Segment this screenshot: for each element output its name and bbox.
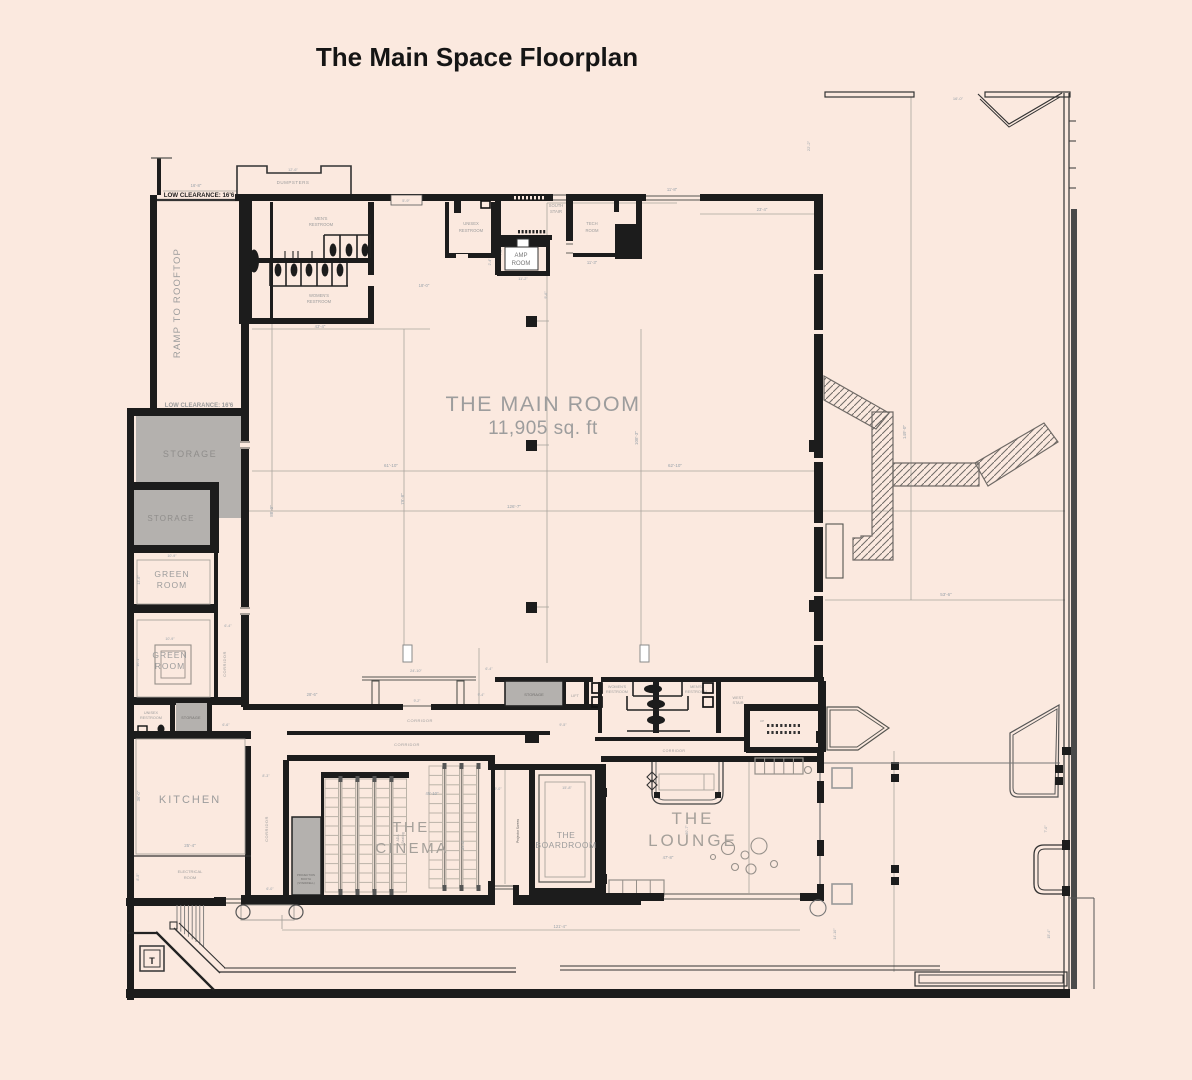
svg-text:LIFT: LIFT: [571, 694, 579, 698]
svg-text:AMP: AMP: [514, 253, 527, 259]
svg-text:RAMP TO ROOFTOP: RAMP TO ROOFTOP: [172, 248, 183, 358]
svg-text:5'-9": 5'-9": [402, 199, 410, 203]
svg-text:RESTROOM: RESTROOM: [606, 690, 628, 694]
svg-text:9'-0": 9'-0": [494, 787, 502, 791]
svg-text:79'-8": 79'-8": [400, 493, 405, 505]
svg-text:18'-0": 18'-0": [419, 283, 430, 288]
svg-text:STAIR: STAIR: [733, 701, 744, 705]
svg-text:ROOM: ROOM: [155, 661, 185, 671]
svg-text:(STAIRWELL): (STAIRWELL): [297, 881, 315, 885]
svg-text:53'-6": 53'-6": [940, 592, 952, 597]
svg-text:11'-8": 11'-8": [667, 187, 678, 192]
svg-text:CORRIDOR: CORRIDOR: [663, 749, 686, 753]
svg-text:61'-10": 61'-10": [384, 463, 398, 468]
svg-text:7'-0": 7'-0": [1044, 825, 1048, 833]
svg-text:WEST: WEST: [733, 696, 745, 700]
svg-text:GREEN: GREEN: [154, 569, 189, 579]
svg-text:9'-2": 9'-2": [414, 699, 422, 703]
svg-text:24'-10": 24'-10": [410, 669, 422, 673]
svg-text:126'-7": 126'-7": [507, 504, 521, 509]
svg-text:Seating: Seating: [401, 832, 405, 844]
svg-text:ROOM: ROOM: [184, 875, 196, 880]
svg-text:13'-6": 13'-6": [137, 575, 141, 585]
svg-text:6'-4": 6'-4": [224, 624, 232, 628]
svg-text:15'-8": 15'-8": [562, 786, 572, 790]
svg-text:16'-8": 16'-8": [191, 183, 202, 188]
svg-text:36'-0": 36'-0": [136, 790, 141, 801]
svg-text:16'-1": 16'-1": [136, 657, 140, 667]
svg-text:STORAGE: STORAGE: [524, 692, 544, 697]
svg-text:6'-6": 6'-6": [222, 723, 230, 727]
svg-text:TECH: TECH: [586, 221, 597, 226]
svg-text:RESTROOM: RESTROOM: [307, 299, 332, 304]
svg-text:45'-10": 45'-10": [426, 791, 440, 796]
svg-text:9'-5": 9'-5": [559, 723, 567, 727]
svg-text:22'-2": 22'-2": [806, 140, 811, 151]
svg-text:CORRIDOR: CORRIDOR: [394, 742, 420, 747]
svg-text:11'-2": 11'-2": [518, 277, 528, 281]
svg-text:28'-6": 28'-6": [307, 692, 318, 697]
svg-text:Projector Screen: Projector Screen: [516, 819, 520, 843]
svg-text:CINEMA: CINEMA: [375, 840, 448, 857]
svg-text:LOW CLEARANCE: 16'6: LOW CLEARANCE: 16'6: [164, 192, 235, 199]
svg-text:BOARDROOM: BOARDROOM: [535, 840, 596, 850]
svg-text:T: T: [149, 956, 155, 966]
svg-text:2'-4": 2'-4": [488, 258, 492, 266]
svg-text:THE: THE: [392, 819, 430, 836]
svg-text:149'-0": 149'-0": [902, 425, 907, 439]
svg-text:ROOM: ROOM: [585, 228, 599, 233]
svg-text:RESTROOM: RESTROOM: [459, 228, 484, 233]
svg-text:8'-3": 8'-3": [262, 774, 270, 778]
svg-text:25'-4": 25'-4": [184, 843, 196, 848]
svg-text:THE: THE: [672, 809, 715, 828]
svg-text:STORAGE: STORAGE: [163, 449, 217, 459]
svg-text:16'-0": 16'-0": [953, 96, 964, 101]
svg-text:6'-4": 6'-4": [485, 667, 493, 671]
svg-text:24'-0": 24'-0": [461, 840, 465, 850]
svg-text:9'-4": 9'-4": [478, 693, 486, 697]
svg-text:10'-9": 10'-9": [167, 554, 177, 558]
svg-text:12'-6": 12'-6": [288, 168, 298, 172]
svg-text:62'-10": 62'-10": [668, 463, 682, 468]
svg-text:8'-5": 8'-5": [136, 873, 140, 881]
svg-text:108'-3": 108'-3": [634, 431, 639, 445]
svg-text:121'-4": 121'-4": [554, 924, 568, 929]
svg-text:9'-6": 9'-6": [544, 291, 548, 299]
svg-text:15'-4": 15'-4": [1047, 929, 1051, 939]
svg-text:RESTROOM: RESTROOM: [309, 222, 334, 227]
svg-text:MEN'S: MEN'S: [690, 685, 702, 689]
svg-text:ADA: ADA: [396, 834, 400, 842]
svg-text:UNISEX: UNISEX: [463, 221, 479, 226]
svg-text:CORRIDOR: CORRIDOR: [407, 718, 433, 723]
svg-text:CORRIDOR: CORRIDOR: [222, 651, 227, 677]
svg-text:47'-8": 47'-8": [663, 855, 674, 860]
svg-text:WOMEN'S: WOMEN'S: [608, 685, 627, 689]
svg-text:ELECTRICAL: ELECTRICAL: [178, 869, 203, 874]
svg-text:11'-3": 11'-3": [587, 260, 598, 265]
svg-text:6'-0": 6'-0": [266, 887, 274, 891]
svg-text:GREEN: GREEN: [152, 650, 187, 660]
svg-text:WOMEN'S: WOMEN'S: [309, 293, 329, 298]
svg-text:KITCHEN: KITCHEN: [159, 794, 221, 806]
svg-text:STORAGE: STORAGE: [147, 514, 194, 523]
svg-text:ROOM: ROOM: [157, 580, 187, 590]
svg-text:CORRIDOR: CORRIDOR: [264, 816, 269, 842]
svg-text:SOUTH: SOUTH: [549, 203, 564, 208]
svg-text:THE MAIN ROOM: THE MAIN ROOM: [445, 392, 640, 416]
svg-text:THE: THE: [557, 830, 576, 840]
svg-text:10'-9": 10'-9": [165, 637, 175, 641]
svg-text:43'-4": 43'-4": [315, 324, 326, 329]
svg-text:UP: UP: [760, 719, 764, 723]
svg-text:ROOM: ROOM: [512, 261, 531, 267]
svg-text:STORAGE: STORAGE: [181, 716, 201, 720]
svg-text:The Main Space Floorplan: The Main Space Floorplan: [316, 42, 638, 72]
svg-text:14'-10": 14'-10": [833, 928, 837, 940]
svg-text:88'-0": 88'-0": [269, 505, 274, 517]
svg-text:UNISEX: UNISEX: [144, 711, 159, 715]
svg-text:23'-4": 23'-4": [757, 207, 768, 212]
svg-text:DUMPSTERS: DUMPSTERS: [277, 180, 310, 185]
svg-text:30'-7": 30'-7": [685, 825, 689, 835]
svg-text:RESTROOM: RESTROOM: [140, 716, 162, 720]
svg-text:11,905 sq. ft: 11,905 sq. ft: [488, 418, 598, 439]
svg-text:STAIR: STAIR: [550, 209, 562, 214]
svg-text:MEN'S: MEN'S: [315, 216, 328, 221]
svg-text:LOUNGE: LOUNGE: [648, 831, 738, 850]
